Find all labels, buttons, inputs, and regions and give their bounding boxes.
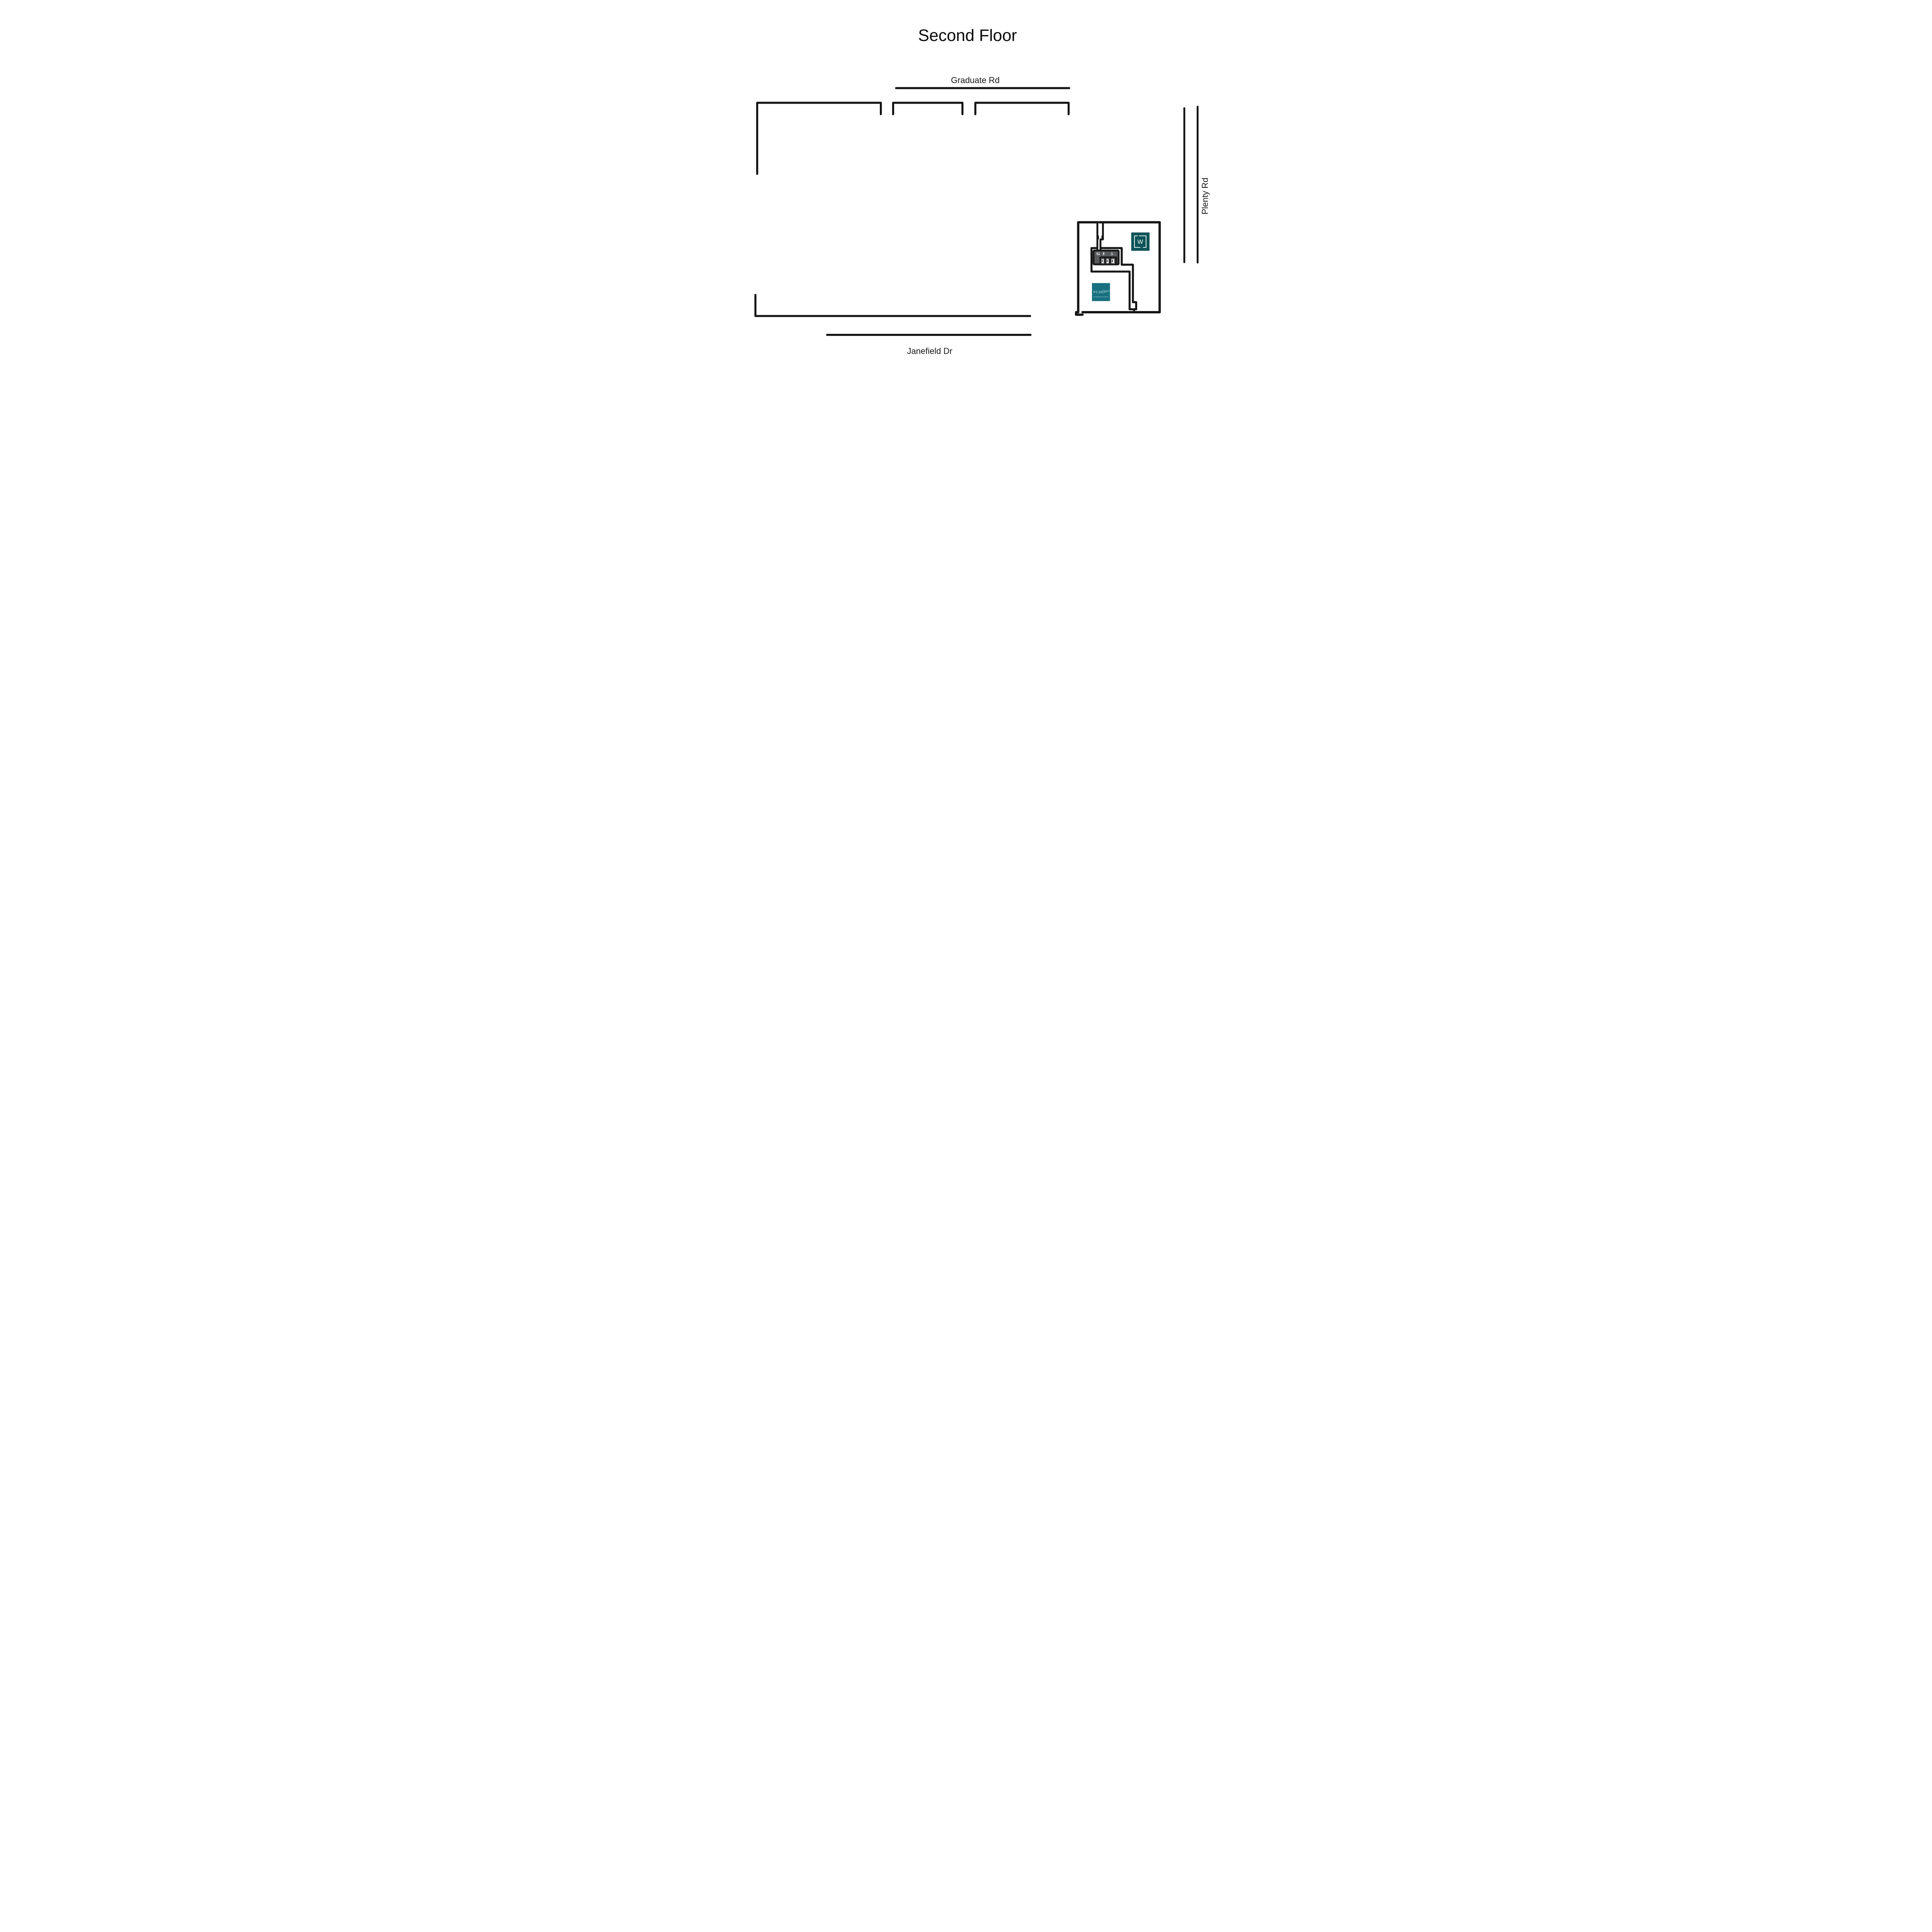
whittlesea-logo: W <box>1131 233 1149 251</box>
floor-plan-page: Second Floor Graduate Rd Plenty Rd Janef… <box>706 0 1227 391</box>
lift-icon <box>1111 258 1115 264</box>
vcat-acronym: VCAT <box>1093 290 1103 294</box>
facilities-sign <box>1092 250 1119 265</box>
floor-plan-map: Second Floor Graduate Rd Plenty Rd Janef… <box>706 0 1227 391</box>
lift-icon <box>1101 258 1104 264</box>
whittlesea-logo-letter: W <box>1137 239 1143 245</box>
mid-block-outline <box>893 103 962 114</box>
vcat-logo: VCAT victorian civil & administrative tr… <box>1092 283 1110 301</box>
street-label-plenty-rd: Plenty Rd <box>1200 178 1209 214</box>
east-block-outline <box>975 103 1068 114</box>
page-title: Second Floor <box>918 26 1017 45</box>
street-lines <box>755 88 1197 335</box>
west-block-outline <box>757 103 881 174</box>
street-label-graduate-rd: Graduate Rd <box>951 75 1000 85</box>
building: W VCAT victorian civil & administrative … <box>1076 222 1159 315</box>
janefield-dr-line-upper <box>755 295 1030 316</box>
lift-icon <box>1105 258 1109 264</box>
lifts-sign <box>1099 257 1117 265</box>
street-label-janefield-dr: Janefield Dr <box>907 346 952 356</box>
